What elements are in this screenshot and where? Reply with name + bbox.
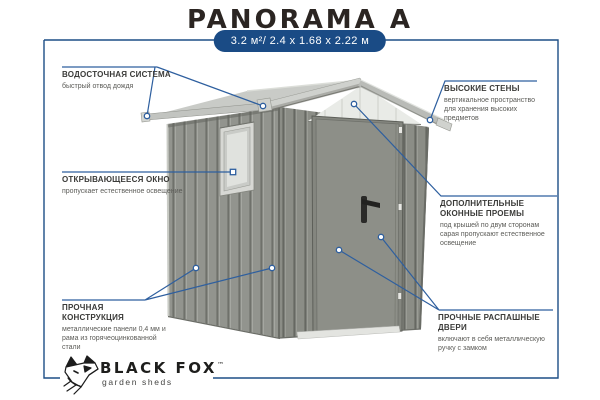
callout-title: ДОПОЛНИТЕЛЬНЫЕ ОКОННЫЕ ПРОЕМЫ	[440, 199, 560, 219]
callout-opening-window: ОТКРЫВАЮЩЕЕСЯ ОКНО пропускает естественн…	[62, 175, 202, 196]
shed-door	[312, 116, 403, 337]
callout-swing-doors: ПРОЧНЫЕ РАСПАШНЫЕ ДВЕРИ включают в себя …	[438, 313, 560, 353]
callout-title: ПРОЧНАЯ КОНСТРУКЦИЯ	[62, 303, 166, 323]
callout-high-walls: ВЫСОКИЕ СТЕНЫ вертикальное пространство …	[444, 84, 546, 123]
marker-construction-1	[193, 265, 198, 270]
shed-illustration	[141, 78, 452, 339]
shed-window	[220, 122, 254, 196]
trademark-symbol: ™	[217, 361, 224, 369]
callout-desc: быстрый отвод дождя	[62, 82, 182, 91]
door-hinge-bottom	[398, 293, 401, 299]
marker-gable-window	[351, 101, 356, 106]
callout-desc: включают в себя металлическую ручку с за…	[438, 335, 560, 353]
marker-door-1	[336, 247, 341, 252]
door-hinge-middle	[399, 204, 402, 210]
marker-gutter-front	[260, 103, 265, 108]
callout-title: ОТКРЫВАЮЩЕЕСЯ ОКНО	[62, 175, 202, 185]
callout-title: ПРОЧНЫЕ РАСПАШНЫЕ ДВЕРИ	[438, 313, 560, 333]
dimensions-badge: 3.2 м²/ 2.4 x 1.68 x 2.22 м	[214, 30, 386, 52]
brand-name: BLACK FOX™	[100, 359, 224, 377]
brand-name-text: BLACK FOX	[100, 359, 217, 377]
callout-desc: пропускает естественное освещение	[62, 187, 202, 196]
marker-door-2	[378, 234, 383, 239]
callout-desc: вертикальное пространство для хранения в…	[444, 96, 546, 123]
marker-window	[230, 169, 235, 174]
marker-construction-2	[269, 265, 274, 270]
brand-tagline: garden sheds	[102, 377, 224, 387]
callout-desc: металлические панели 0,4 мм и рама из го…	[62, 325, 166, 352]
fox-logo-icon	[62, 354, 100, 396]
marker-gutter-left	[144, 113, 149, 118]
brand-block: BLACK FOX™ garden sheds	[100, 359, 224, 387]
callout-extra-window-openings: ДОПОЛНИТЕЛЬНЫЕ ОКОННЫЕ ПРОЕМЫ под крышей…	[440, 199, 560, 248]
callout-durable-construction: ПРОЧНАЯ КОНСТРУКЦИЯ металлические панели…	[62, 303, 166, 352]
callout-title: ВЫСОКИЕ СТЕНЫ	[444, 84, 546, 94]
marker-high-walls	[427, 117, 432, 122]
callout-drainage: ВОДОСТОЧНАЯ СИСТЕМА быстрый отвод дождя	[62, 70, 182, 91]
callout-title: ВОДОСТОЧНАЯ СИСТЕМА	[62, 70, 182, 80]
infographic-canvas: PANORAMA A 3.2 м²/ 2.4 x 1.68 x 2.22 м В…	[0, 0, 600, 400]
callout-desc: под крышей по двум сторонам сарая пропус…	[440, 221, 560, 248]
door-hinge-top	[399, 127, 402, 133]
